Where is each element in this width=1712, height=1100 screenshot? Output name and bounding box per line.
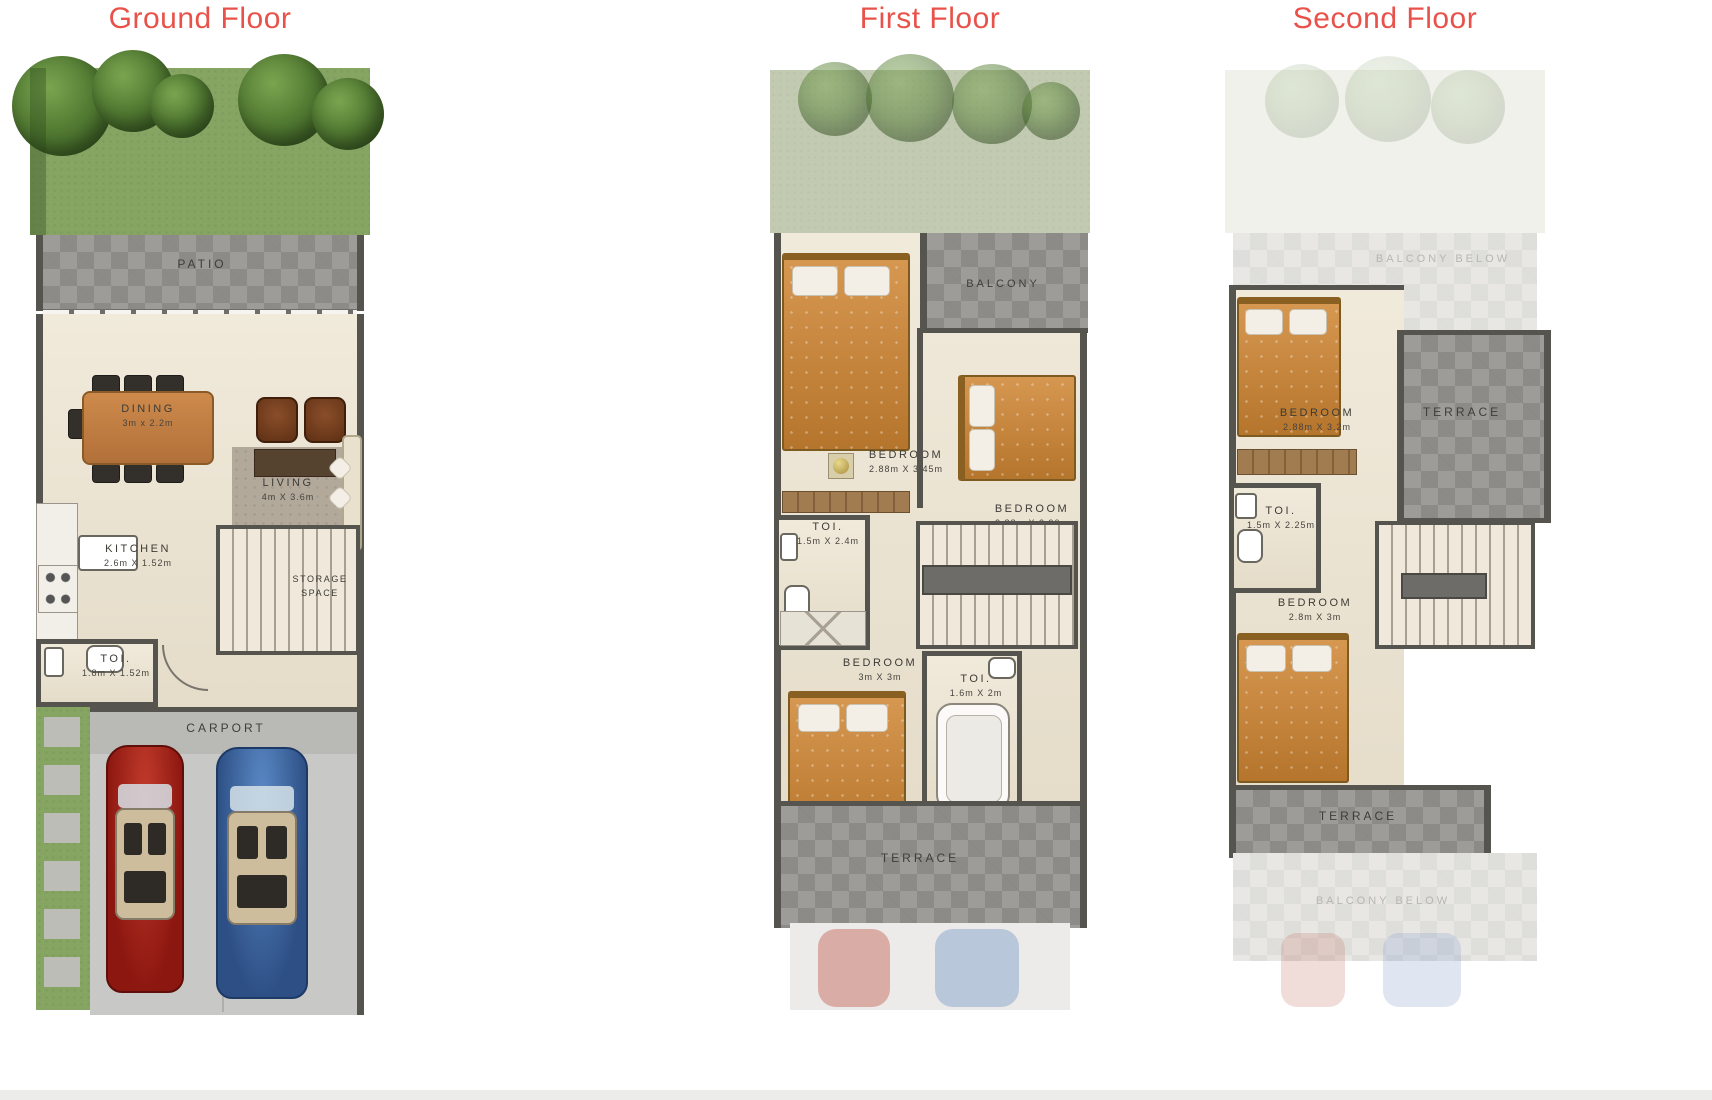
car-seat <box>237 826 258 859</box>
dining-chair <box>92 463 120 483</box>
shower <box>780 611 866 646</box>
bedside-lamp <box>828 453 854 479</box>
car-seat <box>124 871 166 903</box>
stairs-landing <box>1401 573 1487 599</box>
bed-pillow <box>844 266 890 296</box>
bedroom1-label: BEDROOM 2.88m X 3.2m <box>1280 407 1354 433</box>
first-floor-plan: BALCONY BEDROOM 2.88m X 3.45m BEDROOM 2.… <box>770 45 1090 1010</box>
side-garden-strip <box>36 707 90 1010</box>
bedroom2-label: BEDROOM 2.8m X 3m <box>1278 597 1352 623</box>
terrace-upper <box>1397 330 1551 523</box>
tree-graphic <box>150 74 214 138</box>
tree-graphic <box>952 64 1032 144</box>
tree-graphic <box>1431 70 1505 144</box>
toilet <box>1237 529 1263 563</box>
car-seat <box>124 823 142 855</box>
car-seat <box>237 875 287 908</box>
red-car-ghost <box>1281 933 1345 1007</box>
interior-wall <box>917 328 923 508</box>
dining-chair <box>156 463 184 483</box>
car-windshield <box>118 784 171 808</box>
toilet-sink <box>44 647 64 677</box>
bed-graphic <box>782 253 910 451</box>
first-floor-title: First Floor <box>770 2 1090 36</box>
tv-console <box>254 449 336 477</box>
stairs-landing <box>922 565 1072 595</box>
bed-pillow <box>1292 645 1332 672</box>
dining-label: DINING 3m x 2.2m <box>121 403 175 429</box>
bathtub-basin <box>946 715 1002 803</box>
stepping-stones <box>44 717 80 1003</box>
garden-faded <box>770 70 1090 233</box>
carport-label: CARPORT <box>186 721 265 736</box>
patio <box>36 235 364 311</box>
bed-pillow <box>1246 645 1286 672</box>
terrace-right-label: TERRACE <box>1423 405 1501 420</box>
terrace-label: TERRACE <box>881 851 959 866</box>
toilet-sink <box>780 533 798 561</box>
living-label: LIVING 4m X 3.6m <box>262 477 315 503</box>
dresser <box>1237 449 1357 475</box>
tree-graphic <box>1265 64 1339 138</box>
bed-pillow <box>798 704 840 732</box>
toi-label: TOI. 1.5m X 2.25m <box>1247 505 1315 531</box>
balcony-label: BALCONY <box>966 278 1040 292</box>
kitchen-label: KITCHEN 2.6m X 1.52m <box>104 543 172 569</box>
tree-graphic <box>1345 56 1431 142</box>
garden-ghost <box>1225 70 1545 233</box>
bed-pillow <box>1289 309 1327 335</box>
tree-graphic <box>866 54 954 142</box>
car-windshield <box>230 786 293 811</box>
armchair <box>304 397 346 443</box>
lamp-ball <box>833 458 850 475</box>
carport-below-faded <box>790 923 1070 1010</box>
balcony-below-label-top: BALCONY BELOW <box>1376 253 1510 267</box>
car-seat <box>148 823 166 855</box>
toi-label: TOI. 1.8m X 1.52m <box>82 653 150 679</box>
ground-floor-plan: PATIO DINING 3m x 2.2m LIVING 4m X 3.6m <box>30 45 370 1010</box>
stove <box>38 565 78 613</box>
red-car-faded <box>818 929 890 1007</box>
bedroom3-label: BEDROOM 3m X 3m <box>843 657 917 683</box>
bed-pillow <box>969 429 995 471</box>
page-bottom-strip <box>0 1090 1712 1100</box>
bedroom1-label: BEDROOM 2.88m X 3.45m <box>869 449 943 475</box>
bed-pillow <box>1245 309 1283 335</box>
hedge-strip <box>30 68 46 235</box>
patio-label: PATIO <box>177 257 226 272</box>
blue-car-ghost <box>1383 933 1461 1007</box>
car-cabin <box>227 811 297 925</box>
dining-chair <box>124 463 152 483</box>
red-car <box>106 745 184 993</box>
storage-label: STORAGE SPACE <box>292 573 347 600</box>
blue-car <box>216 747 308 999</box>
terrace-bottom-label: TERRACE <box>1319 809 1397 824</box>
armchair <box>256 397 298 443</box>
toi2-label: TOI. 1.6m X 2m <box>950 673 1003 699</box>
bed-graphic <box>958 375 1076 481</box>
floorplan-sheet: Ground Floor First Floor Second Floor PA… <box>0 0 1712 1100</box>
toi1-label: TOI. 1.5m X 2.4m <box>797 521 859 547</box>
bathtub <box>936 703 1010 811</box>
garden <box>30 68 370 235</box>
bed-graphic <box>1237 633 1349 783</box>
balcony-below-label-bottom: BALCONY BELOW <box>1316 895 1450 909</box>
dresser <box>782 491 910 513</box>
second-floor-title: Second Floor <box>1225 2 1545 36</box>
car-cabin <box>115 808 174 920</box>
tree-graphic <box>1022 82 1080 140</box>
bed-pillow <box>969 385 995 427</box>
blue-car-faded <box>935 929 1019 1007</box>
tree-graphic <box>798 62 872 136</box>
bed-pillow <box>792 266 838 296</box>
second-floor-plan: BALCONY BELOW BEDROOM 2.88m X 3.2m TERRA… <box>1225 45 1545 1010</box>
ground-floor-title: Ground Floor <box>30 2 370 36</box>
tree-graphic <box>312 78 384 150</box>
car-seat <box>266 826 287 859</box>
bed-pillow <box>846 704 888 732</box>
